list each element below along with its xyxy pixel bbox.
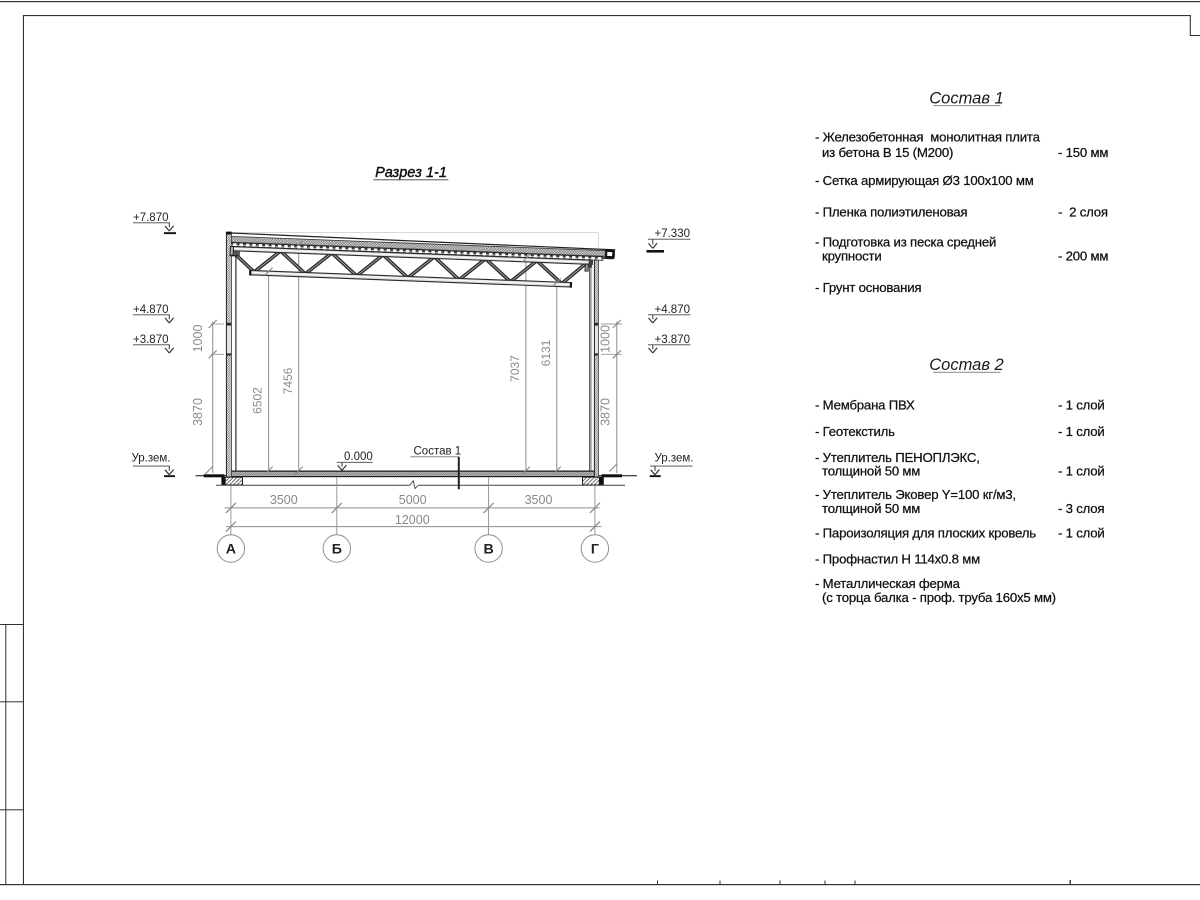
svg-text:- 3 слоя: - 3 слоя xyxy=(1058,501,1104,516)
svg-text:из бетона В 15 (М200): из бетона В 15 (М200) xyxy=(822,145,953,160)
svg-text:- 1 слой: - 1 слой xyxy=(1058,525,1105,540)
svg-text:А: А xyxy=(226,542,236,558)
svg-text:В: В xyxy=(483,542,493,558)
svg-text:- Пароизоляция для плоских кро: - Пароизоляция для плоских кровель xyxy=(815,525,1036,540)
svg-text:0.000: 0.000 xyxy=(344,451,373,463)
svg-text:Б: Б xyxy=(332,542,342,558)
svg-text:+3.870: +3.870 xyxy=(133,334,169,346)
svg-text:+3.870: +3.870 xyxy=(655,334,691,346)
svg-text:1000: 1000 xyxy=(191,325,205,353)
svg-text:- 150 мм: - 150 мм xyxy=(1058,145,1108,160)
svg-text:- 2 слоя: - 2 слоя xyxy=(1058,205,1108,220)
svg-text:- Сетка армирующая Ø3 100х100: - Сетка армирующая Ø3 100х100 мм xyxy=(815,173,1034,188)
svg-text:6502: 6502 xyxy=(251,387,265,414)
svg-text:крупности: крупности xyxy=(822,249,882,264)
svg-text:3870: 3870 xyxy=(191,398,205,426)
svg-text:5000: 5000 xyxy=(399,493,427,507)
svg-text:3870: 3870 xyxy=(599,398,613,426)
svg-text:+4.870: +4.870 xyxy=(133,304,169,316)
svg-text:- Железобетонная монолитная п: - Железобетонная монолитная плита xyxy=(815,129,1041,144)
svg-text:- Профнастил Н 114х0.8 мм: - Профнастил Н 114х0.8 мм xyxy=(815,552,980,567)
svg-text:12000: 12000 xyxy=(395,513,430,527)
svg-text:Ур.зем.: Ур.зем. xyxy=(131,452,170,464)
svg-text:- Пленка полиэтиленовая: - Пленка полиэтиленовая xyxy=(815,205,967,220)
svg-text:Состав 1: Состав 1 xyxy=(929,89,1003,107)
svg-text:(с торца балка - проф. труба 1: (с торца балка - проф. труба 160х5 мм) xyxy=(822,590,1056,605)
svg-text:Состав 1: Состав 1 xyxy=(414,446,462,458)
svg-text:- Геотекстиль: - Геотекстиль xyxy=(815,424,895,439)
svg-text:+7.330: +7.330 xyxy=(655,228,691,240)
svg-text:6131: 6131 xyxy=(539,339,553,366)
svg-text:1000: 1000 xyxy=(599,325,613,353)
svg-text:- 1 слой: - 1 слой xyxy=(1058,398,1105,413)
svg-text:- 1 слой: - 1 слой xyxy=(1058,463,1105,478)
svg-text:- Утеплитель Эковер Y=100 кг/м: - Утеплитель Эковер Y=100 кг/м3, xyxy=(815,487,1016,502)
svg-text:+4.870: +4.870 xyxy=(655,304,691,316)
svg-text:- Металлическая ферма: - Металлическая ферма xyxy=(815,576,961,591)
svg-text:- Мембрана ПВХ: - Мембрана ПВХ xyxy=(815,398,915,413)
svg-text:7037: 7037 xyxy=(508,355,522,382)
svg-text:Г: Г xyxy=(591,542,599,558)
svg-text:толщиной 50 мм: толщиной 50 мм xyxy=(822,501,920,516)
svg-text:3500: 3500 xyxy=(270,493,298,507)
svg-text:Разрез 1-1: Разрез 1-1 xyxy=(375,165,447,181)
svg-text:- Подготовка из песка средней: - Подготовка из песка средней xyxy=(815,235,996,250)
svg-text:Ур.зем.: Ур.зем. xyxy=(655,452,694,464)
svg-text:Состав 2: Состав 2 xyxy=(929,356,1003,374)
svg-text:- 200 мм: - 200 мм xyxy=(1058,249,1108,264)
svg-text:7456: 7456 xyxy=(281,367,295,394)
svg-text:3500: 3500 xyxy=(525,493,553,507)
svg-text:- 1 слой: - 1 слой xyxy=(1058,424,1105,439)
svg-text:+7.870: +7.870 xyxy=(133,212,169,224)
svg-text:- Грунт основания: - Грунт основания xyxy=(815,280,921,295)
svg-text:толщиной 50 мм: толщиной 50 мм xyxy=(822,463,920,478)
